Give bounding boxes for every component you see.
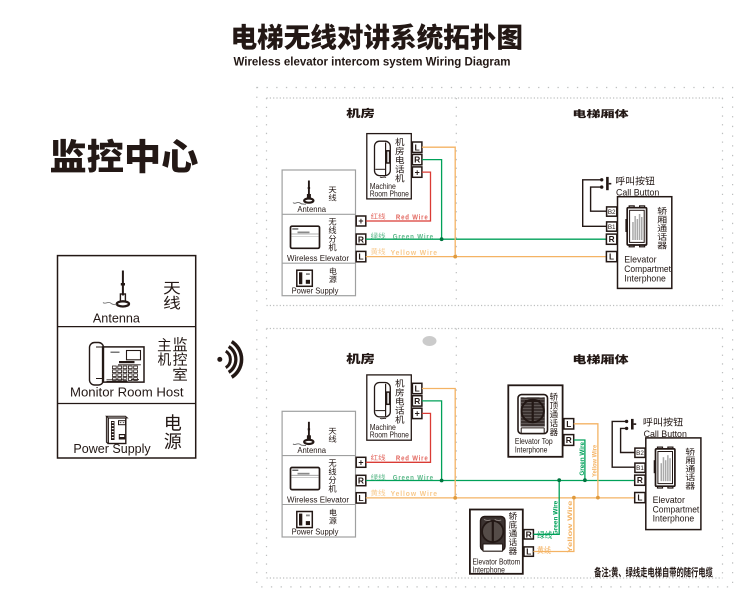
svg-text:Room Phone: Room Phone (370, 189, 410, 198)
svg-text:Antenna: Antenna (297, 446, 326, 455)
svg-text:R: R (358, 234, 364, 244)
svg-text:Green Wire: Green Wire (552, 500, 559, 535)
svg-text:+: + (415, 167, 420, 177)
svg-text:Antenna: Antenna (297, 205, 326, 214)
svg-text:Interphone: Interphone (653, 514, 695, 524)
svg-text:R: R (566, 435, 572, 445)
svg-text:+: + (358, 457, 363, 467)
svg-text:L: L (609, 252, 614, 262)
svg-text:L: L (526, 547, 531, 557)
svg-text:Interphone: Interphone (624, 274, 666, 284)
svg-text:+: + (358, 216, 363, 226)
svg-text:R: R (526, 529, 532, 539)
svg-text:Green Wire: Green Wire (393, 473, 434, 482)
svg-text:B1: B1 (608, 224, 616, 231)
svg-text:B1: B1 (636, 465, 644, 472)
svg-text:Power Supply: Power Supply (292, 286, 339, 295)
svg-text:L: L (566, 419, 571, 429)
svg-text:R: R (414, 396, 420, 406)
svg-text:Interphone: Interphone (515, 446, 548, 455)
svg-text:L: L (637, 493, 642, 503)
svg-text:Antenna: Antenna (93, 311, 140, 325)
svg-text:B2: B2 (636, 450, 644, 457)
svg-text:Red Wire: Red Wire (396, 454, 429, 463)
svg-text:L: L (358, 252, 363, 262)
svg-text:Elevator: Elevator (653, 495, 685, 505)
svg-text:B2: B2 (608, 209, 616, 216)
svg-text:Yellow Wire: Yellow Wire (391, 489, 438, 498)
svg-text:Green Wire: Green Wire (579, 442, 586, 476)
svg-text:Monitor Room Host: Monitor Room Host (70, 386, 184, 400)
svg-text:Interphone: Interphone (473, 565, 506, 575)
svg-text:R: R (609, 234, 615, 244)
svg-text:Yellow Wire: Yellow Wire (567, 500, 574, 552)
svg-text:L: L (415, 142, 420, 152)
svg-text:Room Phone: Room Phone (370, 431, 410, 440)
svg-text:Wireless elevator intercom sys: Wireless elevator intercom system Wiring… (234, 54, 511, 68)
svg-text:R: R (637, 475, 643, 485)
svg-text:R: R (358, 476, 364, 486)
svg-text:Yellow Wire: Yellow Wire (591, 445, 598, 477)
svg-text:Wireless Elevator: Wireless Elevator (287, 254, 349, 263)
svg-text:Green Wire: Green Wire (393, 232, 434, 241)
svg-text:L: L (415, 384, 420, 394)
svg-text:Red Wire: Red Wire (396, 212, 429, 221)
svg-text:Yellow Wire: Yellow Wire (391, 248, 438, 257)
svg-text:Elevator: Elevator (624, 255, 656, 265)
svg-text:Power Supply: Power Supply (292, 528, 339, 537)
svg-text:Power Supply: Power Supply (73, 441, 151, 456)
svg-text:+: + (415, 409, 420, 419)
svg-text:R: R (414, 155, 420, 165)
svg-text:L: L (358, 493, 363, 503)
svg-text:Wireless Elevator: Wireless Elevator (287, 496, 349, 505)
